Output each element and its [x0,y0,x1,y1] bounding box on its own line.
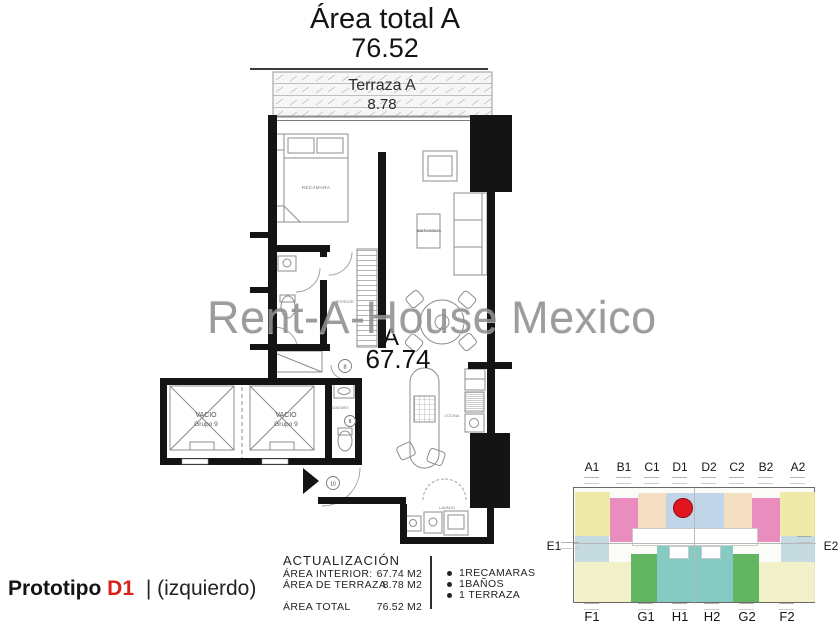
sofa-icon [454,193,487,275]
keyplan-label-D1: D1 [667,460,693,474]
shaft-top-right [470,115,512,192]
kitchen-label: COCINA [445,414,460,418]
keyplan-unit-A2 [780,492,815,536]
keyplan-label-F2: F2 [774,609,800,624]
bullet-icon [447,593,452,598]
keyplan-unit-G2 [733,554,759,602]
keyplan-core-room [701,546,721,559]
keyplan-unit-subtext [779,603,794,610]
keyplan-unit-subtext [739,603,754,610]
keyplan-unit-subtext [701,477,716,484]
laundry-appliances-icon [406,511,468,535]
keyplan-unit-C1 [638,493,666,533]
door-tag: 8 [343,364,346,370]
bathroom-label: SANITARIO [331,406,349,410]
keyplan-core-room [669,546,689,559]
shaft-bottom-right [470,433,510,508]
keyplan-unit-subtext [584,603,599,610]
door-tag: 10 [330,481,336,487]
laundry-label: LAVADO [439,505,455,510]
unit-area-value: 67.74 [365,344,430,374]
bed-icon [272,134,348,222]
keyplan-label-A2: A2 [785,460,811,474]
door-tag: 8 [349,419,352,425]
keyplan-unit-F1 [575,562,631,602]
keyplan-unit-A1 [575,492,610,536]
area-total-value: 76.52 M2 [360,601,422,613]
keyplan-label-D2: D2 [696,460,722,474]
living-label: ESTANCIA [416,228,442,233]
keyplan-mirror-line [694,488,695,604]
keyplan-unit-subtext [672,477,687,484]
keyplan-label-F1: F1 [579,609,605,624]
kitchen-island-icon [396,368,446,468]
keyplan-label-C1: C1 [639,460,665,474]
kitchen-counter-icon [465,369,485,432]
keyplan-label-C2: C2 [724,460,750,474]
watermark-text: Rent-A-House Mexico [207,292,657,344]
keyplan-unit-C2 [724,493,752,533]
void-2-label: VACIO [275,412,297,419]
update-title: ACTUALIZACIÓN [283,553,400,568]
keyplan-label-G1: G1 [633,609,659,624]
keyplan-label-A1: A1 [579,460,605,474]
keyplan-unit-subtext [790,477,805,484]
feature-terrace: 1 TERRAZA [459,589,520,601]
void-2-sublabel: Grupo 9 [274,421,298,428]
bullet-icon [447,582,452,587]
keyplan-label-B2: B2 [753,460,779,474]
keyplan-label-G2: G2 [734,609,760,624]
void-1-label: VACIO [195,412,217,419]
keyplan-unit-subtext [758,477,773,484]
keyplan-unit-subtext [638,603,653,610]
prototype-label: Prototipo [8,577,101,600]
keyplan-label-H2: H2 [699,609,725,624]
feature-item: 1 TERRAZA [447,589,520,601]
keyplan-unit-E1 [575,536,609,562]
floorplan-sheet: 8 8 10 Terraza A 8.78 A 67.74 RECÁMARA E… [0,0,840,630]
keyplan-label-B1: B1 [611,460,637,474]
void-1-sublabel: Grupo 9 [194,421,218,428]
total-area-value: 76.52 [245,34,525,62]
prototype-caption: Prototipo D1 | (izquierdo) [8,577,256,601]
keyplan-unit-subtext [672,603,687,610]
terrace-value: 8.78 [367,96,396,113]
keyplan-unit-subtext [584,477,599,484]
divider [430,556,432,609]
tv-console-icon [423,151,457,181]
page-title: Área total A [245,4,525,34]
prototype-side: | (izquierdo) [146,577,257,600]
keyplan-building [573,487,815,603]
keyplan-unit-F2 [759,562,815,602]
laundry-double-door-icon [423,479,466,500]
bedroom-label: RECÁMARA [302,184,331,190]
keyplan-unit-subtext [729,477,744,484]
keyplan-level-line [574,543,816,544]
keyplan-label-E2: E2 [818,539,840,553]
area-total-label: ÁREA TOTAL [283,601,351,613]
prototype-code: D1 [107,577,134,600]
keyplan-label-H1: H1 [667,609,693,624]
keyplan-unit-subtext [704,603,719,610]
keyplan-unit-subtext [561,542,579,549]
keyplan-unit-subtext [616,477,631,484]
keyplan-unit-G1 [631,554,657,602]
keyplan-unit-subtext [644,477,659,484]
highlighted-unit-marker [673,498,693,518]
title-block: Área total A 76.52 [245,4,525,63]
terrace-label: Terraza A [348,77,416,94]
area-terrace-value: 8.78 M2 [360,579,422,591]
entrance-arrow-icon [303,468,319,494]
keyplan-unit-subtext [797,536,811,543]
bullet-icon [447,571,452,576]
